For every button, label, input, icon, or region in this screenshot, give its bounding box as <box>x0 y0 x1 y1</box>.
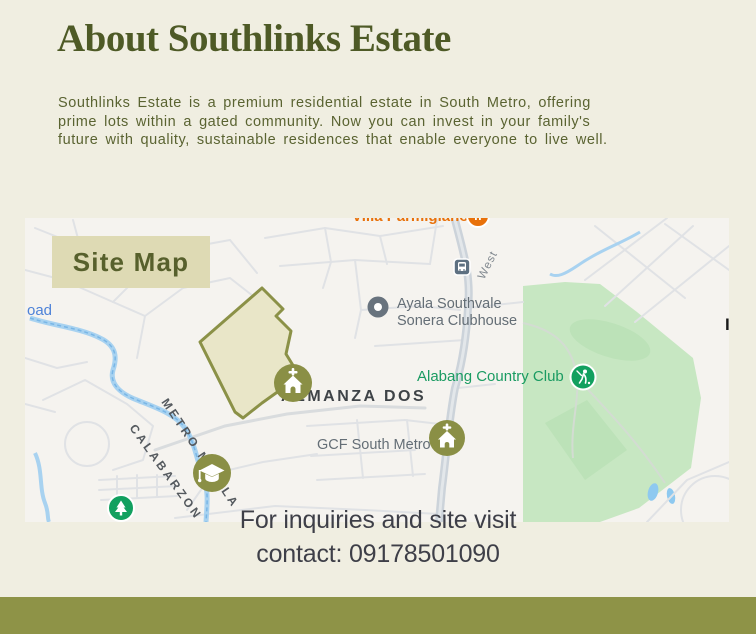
contact-note: For inquiries and site visit contact: 09… <box>0 503 756 571</box>
place-pin-icon <box>368 297 389 318</box>
page: About Southlinks Estate Southlinks Estat… <box>0 0 756 634</box>
church-marker-icon <box>274 364 312 402</box>
map-label-edge-fragment: I <box>725 315 729 334</box>
map-label-villa-parmigiano: Villa Parmigiano <box>352 218 468 225</box>
map-label-ayala-line1: Ayala Southvale <box>397 296 502 312</box>
map-label-road-fragment: oad <box>27 302 52 319</box>
map-label-alabang-country-club: Alabang Country Club <box>417 368 564 385</box>
page-description: Southlinks Estate is a premium residenti… <box>58 94 608 150</box>
site-map-badge-label: Site Map <box>73 247 190 278</box>
school-marker-icon <box>193 454 231 492</box>
footer-bar <box>0 597 756 634</box>
transit-station-icon <box>454 259 470 275</box>
page-title: About Southlinks Estate <box>57 16 451 61</box>
map-label-gcf-south-metro: GCF South Metro <box>317 437 431 453</box>
site-map-badge: Site Map <box>52 236 210 288</box>
map-label-ayala-line2: Sonera Clubhouse <box>397 313 517 329</box>
church-marker-icon <box>429 420 465 456</box>
golf-marker-icon <box>571 365 596 390</box>
